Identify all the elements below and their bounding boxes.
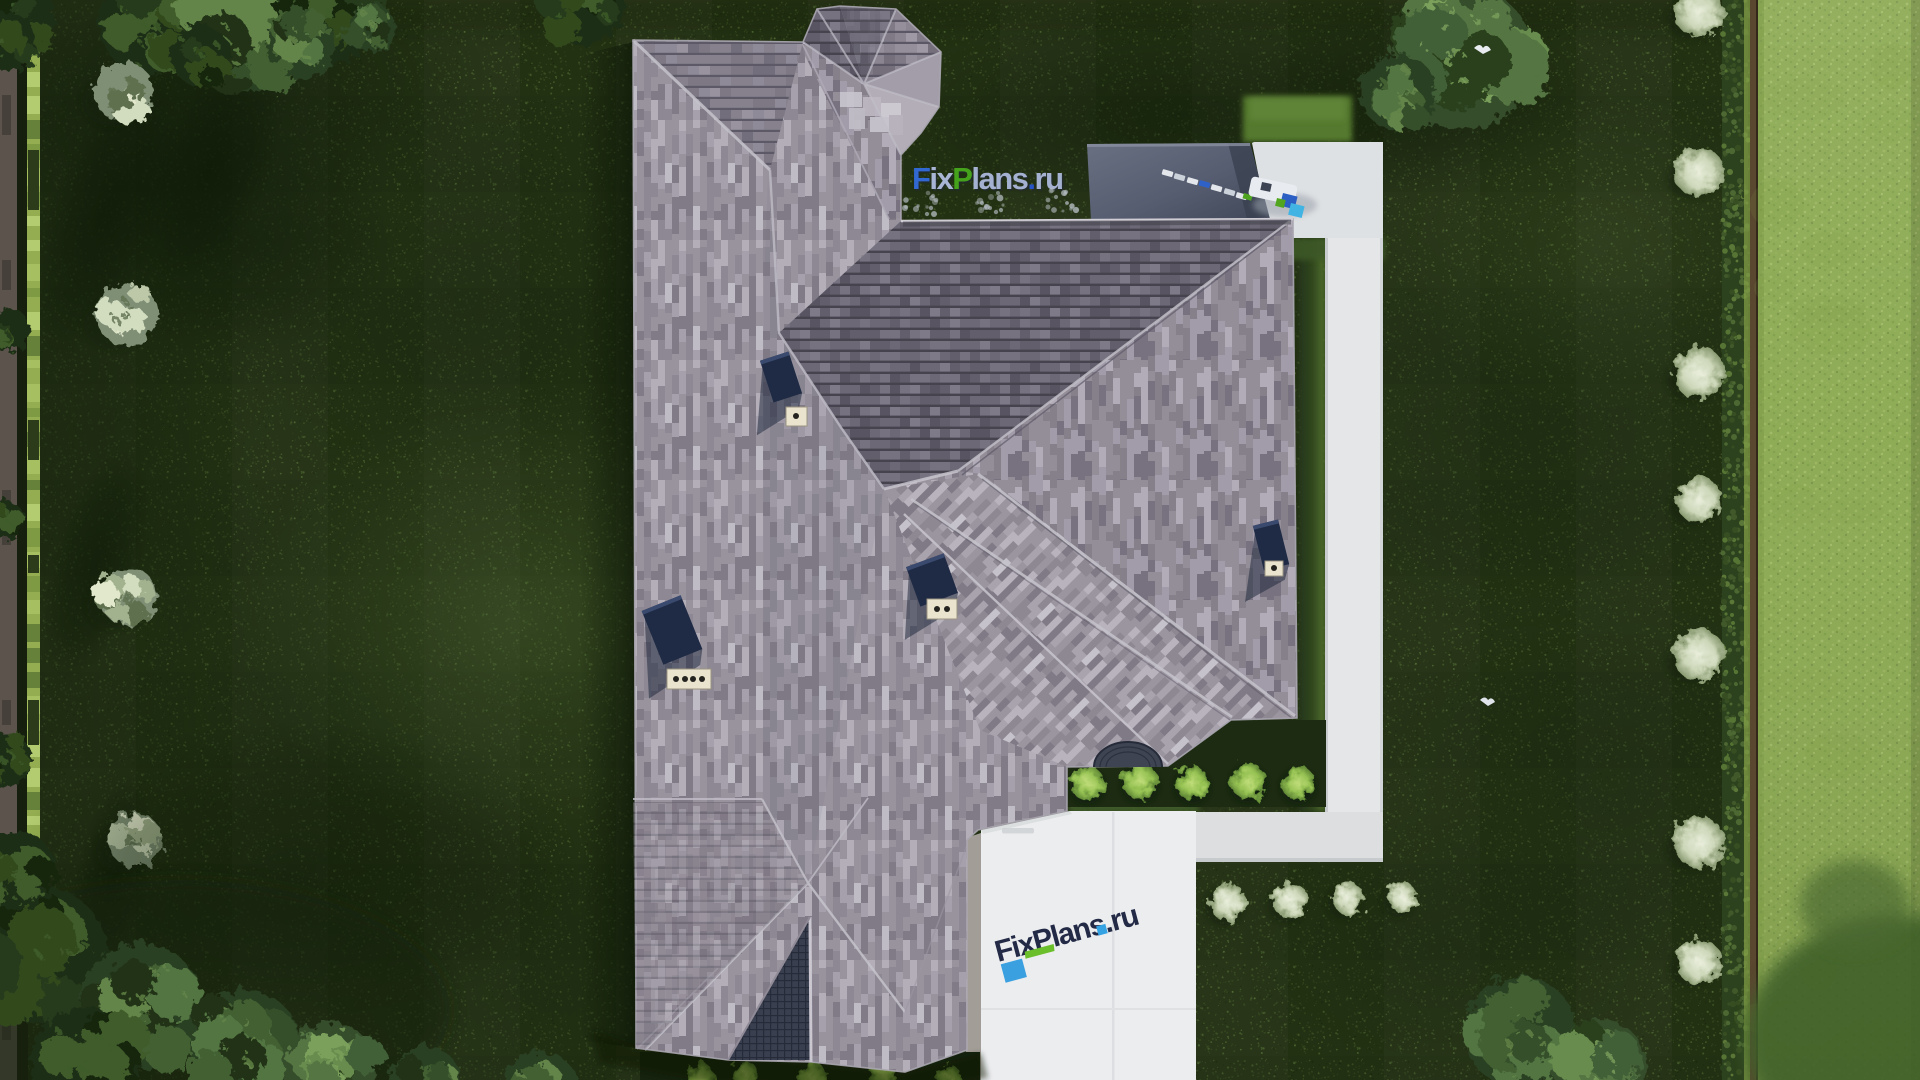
svg-text:FixPlans.ru: FixPlans.ru [912, 161, 1064, 196]
